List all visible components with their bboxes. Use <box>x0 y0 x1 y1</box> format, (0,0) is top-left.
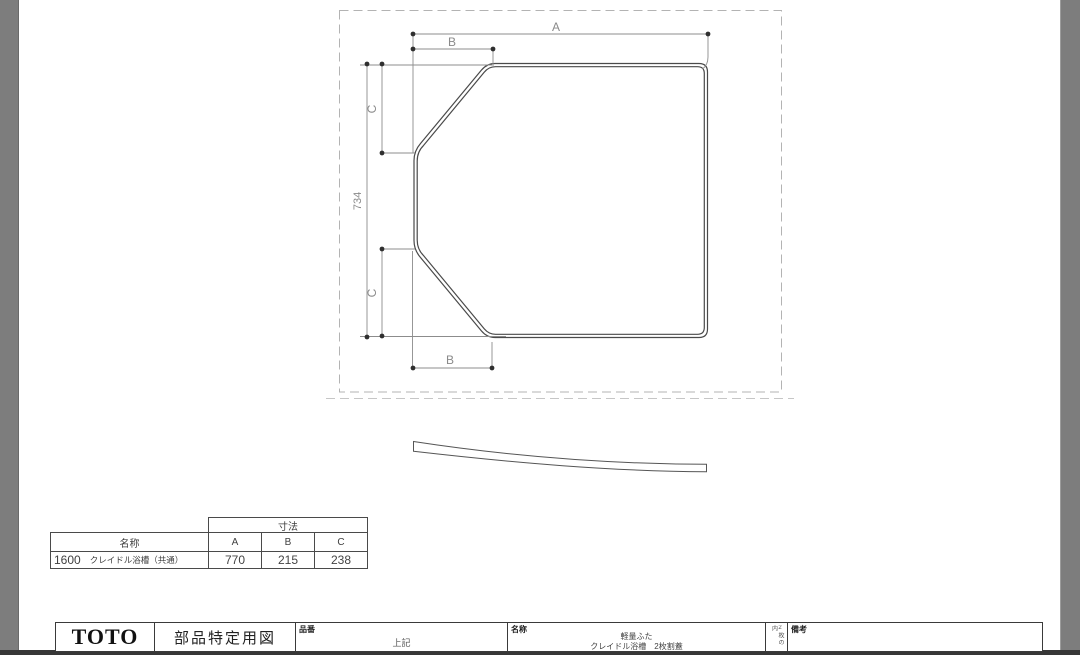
dim-table-value-a: 770 <box>208 551 262 569</box>
title-block-logo-cell: TOTO <box>55 622 155 652</box>
dim-label-a: A <box>552 20 560 34</box>
part-number-value: 上記 <box>296 636 507 649</box>
dimension-lines <box>360 34 708 368</box>
dim-label-c-bottom: C <box>365 288 379 297</box>
dim-table-header-col-b: B <box>261 532 315 552</box>
doc-type-title: 部品特定用図 <box>155 623 295 651</box>
dim-label-height: 734 <box>352 192 364 210</box>
tub-name: クレイドル浴槽（共通） <box>90 554 184 566</box>
remarks-label: 備考 <box>791 624 807 635</box>
lid-outline <box>414 64 708 338</box>
part-name-line1: 軽量ふた <box>508 632 765 642</box>
sheet-note: 2枚の内 <box>770 625 783 651</box>
title-block-sheetnote-cell: 2枚の内 <box>765 622 788 652</box>
dim-table-row-name: 1600 クレイドル浴槽（共通） <box>50 551 209 569</box>
dim-table-header-col-c: C <box>314 532 368 552</box>
lid-side-profile <box>414 442 707 472</box>
dim-table-header-sunpo: 寸法 <box>208 517 368 533</box>
dim-table-header-name: 名称 <box>50 532 209 552</box>
tub-size: 1600 <box>54 553 81 567</box>
dim-label-b-bottom: B <box>446 353 454 367</box>
title-block-doctype-cell: 部品特定用図 <box>154 622 296 652</box>
dim-label-b-top: B <box>448 35 456 49</box>
title-block-name-cell: 名称 軽量ふた クレイドル浴槽 2枚割蓋 <box>507 622 766 652</box>
toto-logo: TOTO <box>56 623 154 651</box>
dim-table-value-b: 215 <box>261 551 315 569</box>
part-number-label: 品番 <box>299 624 315 635</box>
dimension-dots <box>365 32 711 371</box>
part-name-line2: クレイドル浴槽 2枚割蓋 <box>508 642 765 652</box>
dim-label-c-top: C <box>365 104 379 113</box>
dim-table-value-c: 238 <box>314 551 368 569</box>
title-block-partnumber-cell: 品番 上記 <box>295 622 508 652</box>
title-block-remarks-cell: 備考 <box>787 622 1043 652</box>
dashed-frame <box>326 11 794 399</box>
dim-table-header-col-a: A <box>208 532 262 552</box>
